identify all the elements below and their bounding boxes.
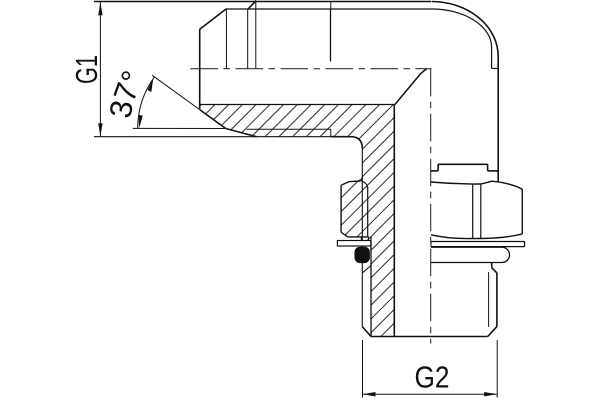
- svg-text:G2: G2: [415, 360, 450, 395]
- svg-text:G1: G1: [69, 55, 104, 84]
